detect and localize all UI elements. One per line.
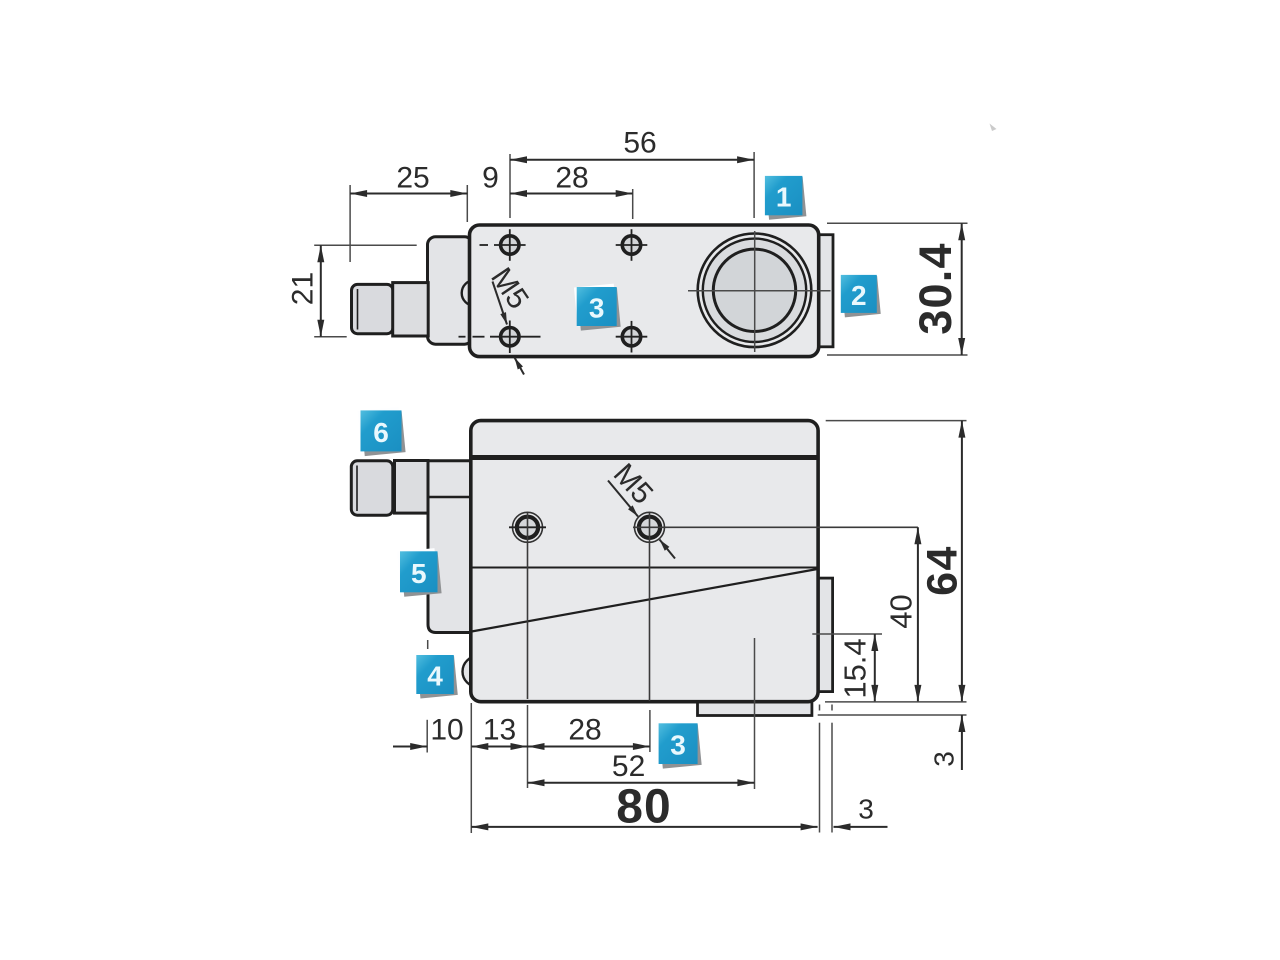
svg-text:28: 28 <box>568 714 601 747</box>
svg-text:80: 80 <box>616 781 671 834</box>
svg-text:56: 56 <box>623 127 656 160</box>
svg-text:9: 9 <box>482 162 499 195</box>
svg-text:2: 2 <box>851 280 867 311</box>
svg-text:21: 21 <box>287 272 320 305</box>
svg-text:40: 40 <box>884 594 919 628</box>
svg-text:4: 4 <box>427 661 443 692</box>
svg-text:52: 52 <box>612 750 645 783</box>
svg-text:30.4: 30.4 <box>910 242 961 334</box>
svg-text:3: 3 <box>670 730 686 761</box>
svg-text:3: 3 <box>858 794 874 825</box>
svg-text:3: 3 <box>929 751 960 767</box>
svg-text:1: 1 <box>776 182 792 213</box>
svg-text:5: 5 <box>411 558 427 589</box>
svg-text:3: 3 <box>589 293 605 324</box>
svg-text:64: 64 <box>919 545 967 596</box>
svg-text:6: 6 <box>373 417 389 448</box>
svg-text:28: 28 <box>555 162 588 195</box>
svg-text:13: 13 <box>483 714 516 747</box>
svg-text:15.4: 15.4 <box>838 638 873 698</box>
svg-text:10: 10 <box>430 714 463 747</box>
svg-text:25: 25 <box>396 162 429 195</box>
